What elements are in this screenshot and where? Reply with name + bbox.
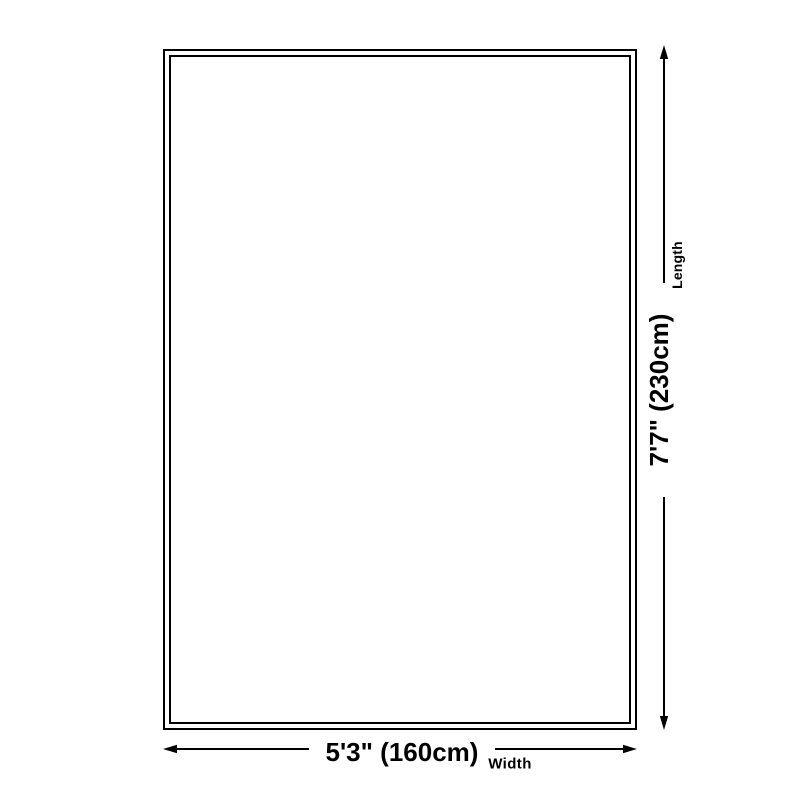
- rug-inner-border: [169, 55, 631, 724]
- size-diagram: 7'7" (230cm) Length 5'3" (160cm) Width: [0, 0, 800, 800]
- length-arrowhead-up-icon: [660, 45, 668, 59]
- length-axis-label: Length: [669, 241, 685, 289]
- width-arrowhead-right-icon: [623, 745, 637, 753]
- rug-outline: [163, 49, 637, 730]
- width-axis-label: Width: [488, 755, 532, 772]
- length-arrowhead-down-icon: [660, 716, 668, 730]
- width-value-label: 5'3" (160cm): [326, 738, 479, 768]
- width-arrowhead-left-icon: [163, 745, 177, 753]
- length-value-label: 7'7" (230cm): [645, 314, 675, 467]
